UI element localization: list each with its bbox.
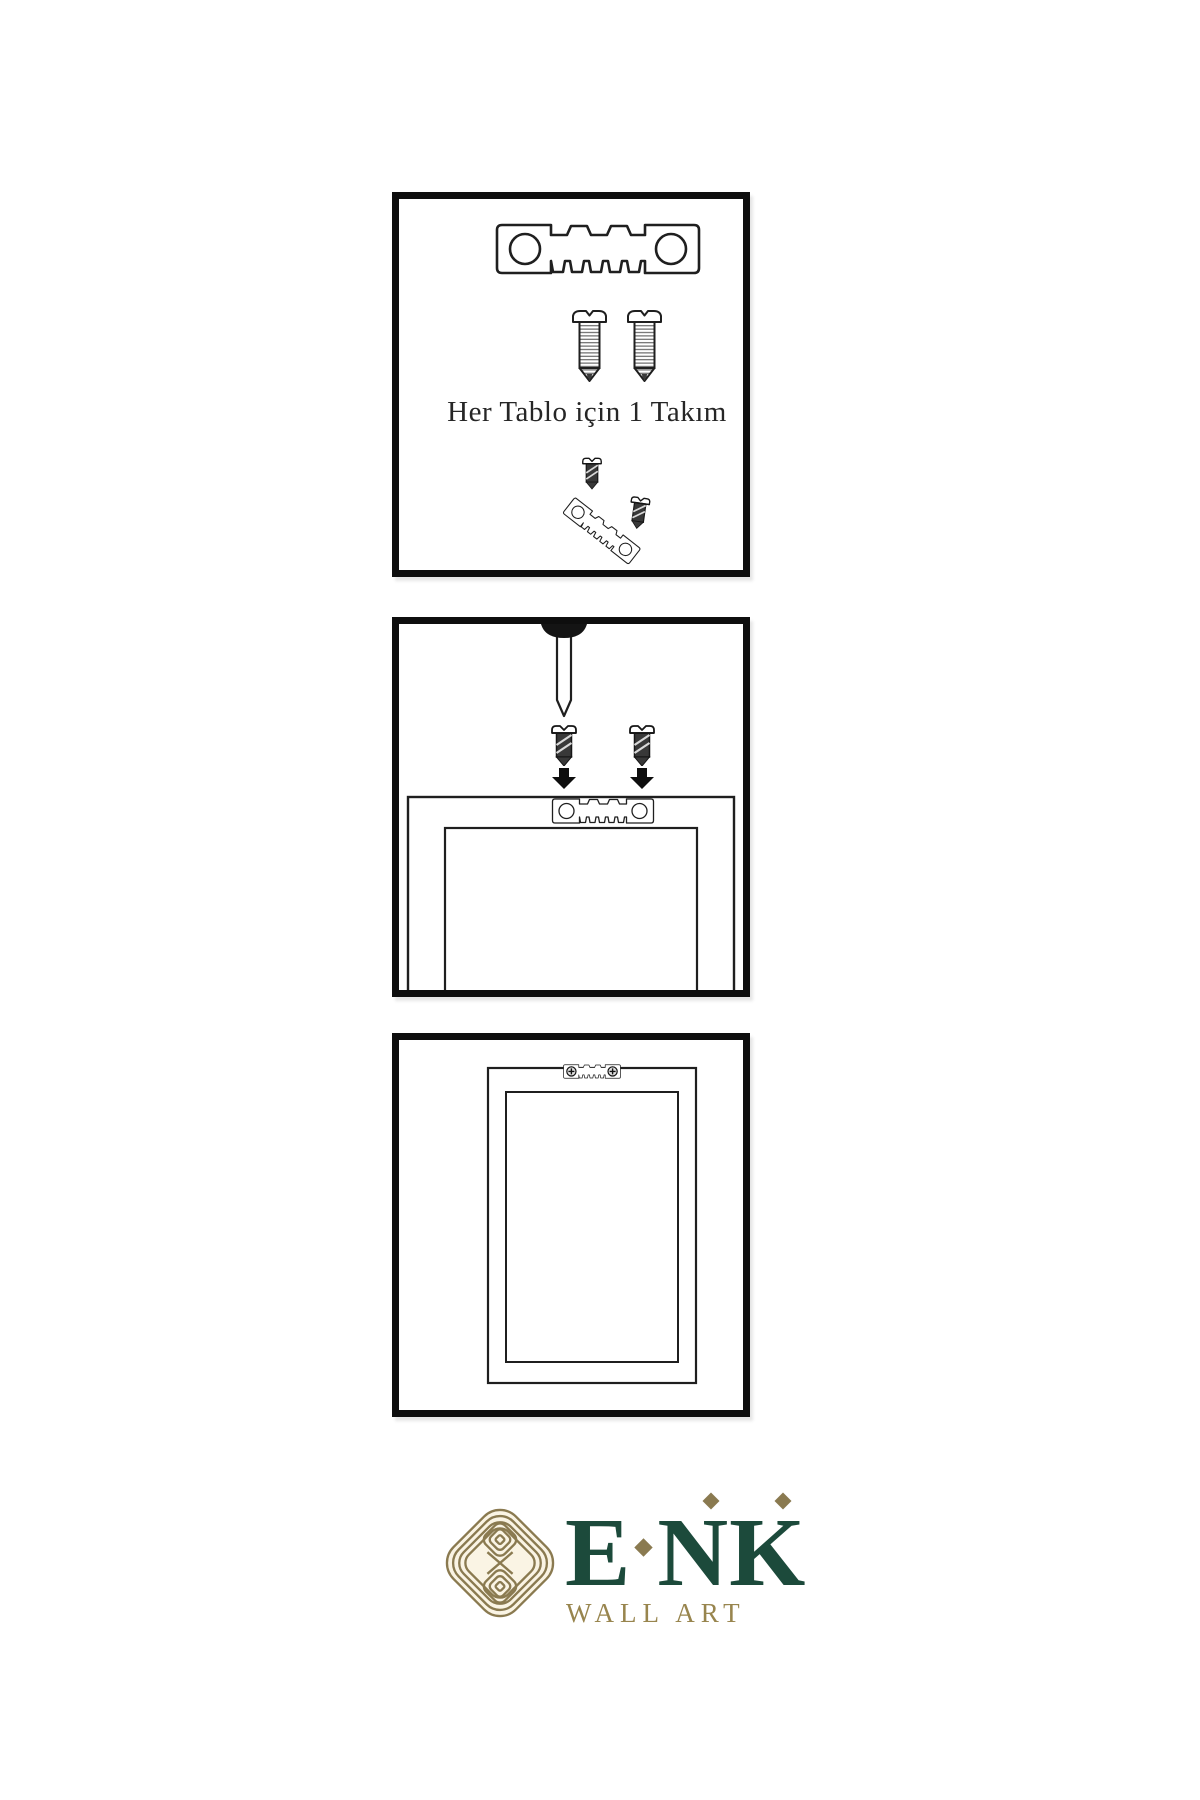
phillips-screw-icon bbox=[608, 1067, 617, 1076]
screw-icon bbox=[628, 311, 661, 381]
screw-icon bbox=[573, 311, 606, 381]
wordmark-letter-k: K bbox=[729, 1499, 806, 1607]
hardware-kit-panel: Her Tablo için 1 Takım bbox=[392, 192, 750, 577]
wall-mounting-illustration bbox=[399, 624, 743, 990]
mounted-sawtooth-hanger-icon bbox=[564, 1065, 621, 1079]
nail-icon bbox=[541, 624, 587, 716]
wall-mounting-panel bbox=[392, 617, 750, 997]
wordmark-letter-n: N bbox=[657, 1499, 729, 1607]
phillips-screw-icon bbox=[567, 1067, 576, 1076]
frame-result-panel bbox=[392, 1033, 750, 1417]
screw-icon bbox=[552, 726, 576, 766]
kit-caption: Her Tablo için 1 Takım bbox=[431, 397, 743, 427]
screw-icon bbox=[628, 497, 651, 530]
frame-back-icon bbox=[488, 1068, 696, 1383]
brand-wordmark: ENK bbox=[565, 1504, 806, 1602]
screw-icon bbox=[583, 458, 601, 489]
frame-result-illustration bbox=[399, 1040, 743, 1410]
brand-knot-icon bbox=[437, 1498, 563, 1628]
down-arrow-icon bbox=[630, 768, 654, 789]
brand-subtitle: WALL ART bbox=[566, 1598, 746, 1629]
down-arrow-icon bbox=[552, 768, 576, 789]
instruction-sheet: { "colors": { "background": "#ffffff", "… bbox=[0, 0, 1200, 1800]
sawtooth-hanger-icon bbox=[497, 225, 699, 273]
wordmark-letter-e: E bbox=[565, 1499, 631, 1607]
hardware-kit-illustration bbox=[399, 199, 743, 570]
diamond-icon bbox=[635, 1538, 653, 1556]
sawtooth-hanger-icon bbox=[563, 497, 641, 564]
screw-icon bbox=[630, 726, 654, 766]
screw-into-hanger-icon bbox=[563, 458, 650, 564]
frame-back-icon bbox=[408, 797, 734, 990]
